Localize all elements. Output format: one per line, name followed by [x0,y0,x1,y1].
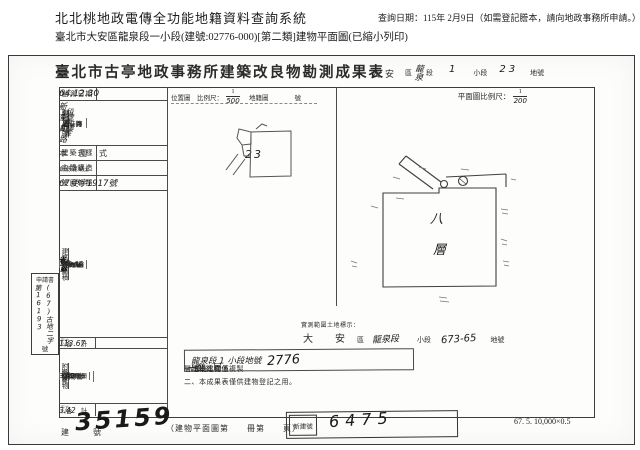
system-title: 北北桃地政電傳全功能地籍資料查詢系統 [55,8,307,27]
lot-label: 地號 [530,64,544,78]
building-style-row: 建築式樣 本 國 式 [59,146,167,161]
annex-area-unit: 平方公尺 [59,372,72,381]
document-subtitle: 臺北市大安區龍泉段一小段(建號:02776-000)[第二類]建物平面圖(已縮小… [55,29,408,44]
measured-land-line: 大 安 區 龍泉段 小段 673-65 地號 [303,330,504,345]
subsection-number-handwritten: 1 [449,64,455,75]
location-scale-numerator: 1 [231,89,234,95]
location-scale-fraction: 1 500 [226,89,240,104]
plan-scale-fraction: 1 200 [513,89,527,104]
new-building-number-handwritten: 6475 [328,408,394,431]
boxed-lot-number-handwritten: 2776 [267,352,301,369]
measured-district-label: 區 [357,335,364,345]
measured-subsection-label: 小段 [417,335,431,345]
plan-book-reference: （建物平面圖第 冊第 頁） [166,423,301,434]
application-label: 申請書 [32,275,58,284]
license-row: 使用執照 67使字1917號 [59,176,167,191]
annex-total-unit: 平方公尺 [59,406,71,415]
location-map-title: 位置圖 比例尺： [171,92,223,102]
district-name: 大安 [371,64,399,80]
form-print-code: 67. 5. 10,000×0.5 [514,417,571,426]
floor-area-section: 建築物面積 第一層省. 略平方公尺第二層省. 略平方公尺第三層省. 略平方公尺第… [59,191,167,338]
note-2-text: 二、本成果表僅供建物登記之用。 [184,377,297,387]
plan-scale-denominator: 200 [514,98,527,104]
location-map-dashed-line [171,103,317,104]
floor-outline [383,188,496,287]
land-reference-line: 大安 區 龍泉 段 1 小段 23 地號 [371,64,544,88]
room-label-char-1: 八 [430,212,443,227]
measured-section-handwritten: 龍泉段 [372,331,400,345]
note-1-suffix: 部分。 [194,364,217,374]
cadastre-map-label: 地籍圖 [249,92,269,102]
structure-row: 主體構造 鋼筋混凝土 [59,161,167,176]
registration-number-handwritten: 35159 [74,402,174,437]
floor-area-unit: 平方公尺 [59,260,72,269]
measured-land-heading: 實測範圍土地標示： [301,320,360,329]
application-number-suffix: 號 [32,343,58,353]
survey-sheet-title: 臺北市古亭地政事務所建築改良物勘測成果表 [55,61,385,82]
location-plan-divider [336,87,337,306]
scanned-survey-sheet: 臺北市古亭地政事務所建築改良物勘測成果表 大安 區 龍泉 段 1 小段 23 地… [8,55,635,445]
door-plate-row-value: 4號 8樓 [59,112,75,134]
floor-total-unit: 平方公尺 [59,339,71,348]
application-number-handwritten: (67)古地二字第16193 [33,284,55,345]
floor-plan-title: 平面圖比例尺： [458,91,511,102]
location-map-sketch [174,114,294,204]
plan-scale-numerator: 1 [519,89,522,95]
room-label-char-2: 層 [433,243,448,258]
annex-section: 附屬建物 使用種類主體構造面 積陽台鋼筋混凝土3.42平方公尺・平方公尺・平方公… [59,349,167,404]
floor-plan-drawing: 八 層 [341,151,571,326]
application-number-box: 申請書 (67)古地二字第16193 號 [31,273,59,355]
door-plate-group: 建物門牌 街 路新生南路段巷弄3段 巷 弄門 牌4號 8樓 [59,101,167,146]
subsection-label: 小段 [473,64,487,78]
structure-value: 鋼筋混凝土 [59,164,89,173]
lot-number-handwritten: 23 [499,64,518,75]
survey-date-value: 64.12.30 [59,89,99,99]
measured-district: 大 安 [303,330,351,345]
floor-total-row: 合 計 113.67 平方公尺 [59,338,167,349]
query-date-note: 查詢日期：115年 2月9日（如需登記謄本，請向地政事務所申請。） [378,11,640,24]
measured-lot-label: 地號 [490,335,504,345]
left-panel-divider [167,87,168,416]
cadastre-map-suffix: 號 [295,92,302,102]
section-label: 段 [426,64,433,78]
section-name-handwritten: 龍泉 [413,64,423,88]
district-label: 區 [405,64,412,78]
floor-plan-header: 平面圖比例尺： 1 200 [409,89,579,104]
building-style-value: 本 國 式 [59,148,109,159]
new-building-number-label: 新建號 [289,415,317,436]
location-map-header: 位置圖 比例尺： 1 500 地籍圖 號 [171,89,301,104]
new-building-number-box: 新建號 6475 [286,410,458,439]
measured-lot-handwritten: 673-65 [441,333,477,346]
license-value: 67使字1917號 [59,177,117,189]
survey-date-row: 勘測日期 64.12.30 [59,87,167,101]
